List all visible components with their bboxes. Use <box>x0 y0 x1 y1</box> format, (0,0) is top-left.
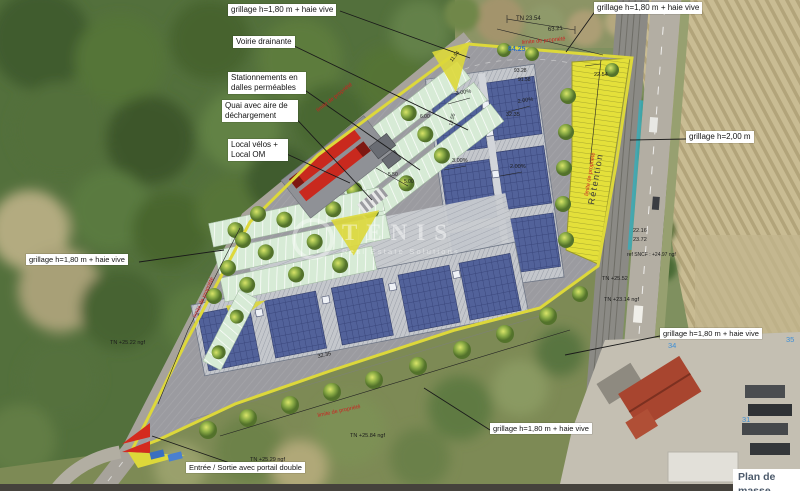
dim-label: 93.28 <box>514 68 527 74</box>
annotation-stationnements: Stationnements en dalles perméables <box>228 72 306 94</box>
annotation-fence-2m: grillage h=2,00 m <box>686 131 754 143</box>
tn-level-label: TN 23.54 <box>516 16 541 22</box>
annotation-local-velos: Local vélos + Local OM <box>228 139 288 161</box>
dim-label: 5.50 <box>388 172 398 178</box>
vehicle <box>652 196 660 210</box>
annotation-fence-bottom: grillage h=1,80 m + haie vive <box>490 423 592 434</box>
plan-drawing: Rétention <box>0 0 800 491</box>
tn-level-label: TN +25.84 ngf <box>350 433 385 439</box>
slope-label: 3.00% <box>452 158 468 164</box>
white-building <box>668 452 738 482</box>
annotation-quai: Quai avec aire de déchargement <box>222 100 298 122</box>
annotation-fence-right: grillage h=1,80 m + haie vive <box>660 328 762 339</box>
dim-label: 22.54 <box>594 72 608 78</box>
annotation-fence-left: grillage h=1,80 m + haie vive <box>26 254 128 265</box>
plan-title: Plan de masse <box>733 469 800 491</box>
tn-level-label: TN +25.52 <box>602 276 628 282</box>
dim-label: 91.58 <box>518 77 531 83</box>
dim-label: 6.00 <box>420 114 430 120</box>
parcel-number: 31 <box>742 415 750 424</box>
annotation-fence-top-right: grillage h=1,80 m + haie vive <box>594 2 702 14</box>
tn-level-label: TN +23.14 ngf <box>604 297 639 303</box>
alt-level-label: 84.25 <box>508 46 526 53</box>
slope-label: 2.00% <box>510 164 526 170</box>
parcel-number: 34 <box>668 341 676 350</box>
parcel-number: 35 <box>786 335 794 344</box>
dim-label: 5.00 <box>404 179 414 185</box>
tn-level-label: TN +25.22 ngf <box>110 340 145 346</box>
vehicle <box>649 117 658 133</box>
vehicle <box>633 305 643 323</box>
site-plan-image: Rétention <box>0 0 800 491</box>
annotation-voirie: Voirie drainante <box>233 36 295 48</box>
annotation-entrance: Entrée / Sortie avec portail double <box>186 462 305 473</box>
dim-label: 22.16 <box>633 228 647 234</box>
ref-level-label: ref SNCF : +24.97 ngf <box>627 252 676 258</box>
annotation-fence-top-left: grillage h=1,80 m + haie vive <box>228 4 336 16</box>
dim-label: 32.35 <box>506 112 520 118</box>
image-edge-strip <box>0 484 800 491</box>
dim-label: 23.72 <box>633 237 647 243</box>
